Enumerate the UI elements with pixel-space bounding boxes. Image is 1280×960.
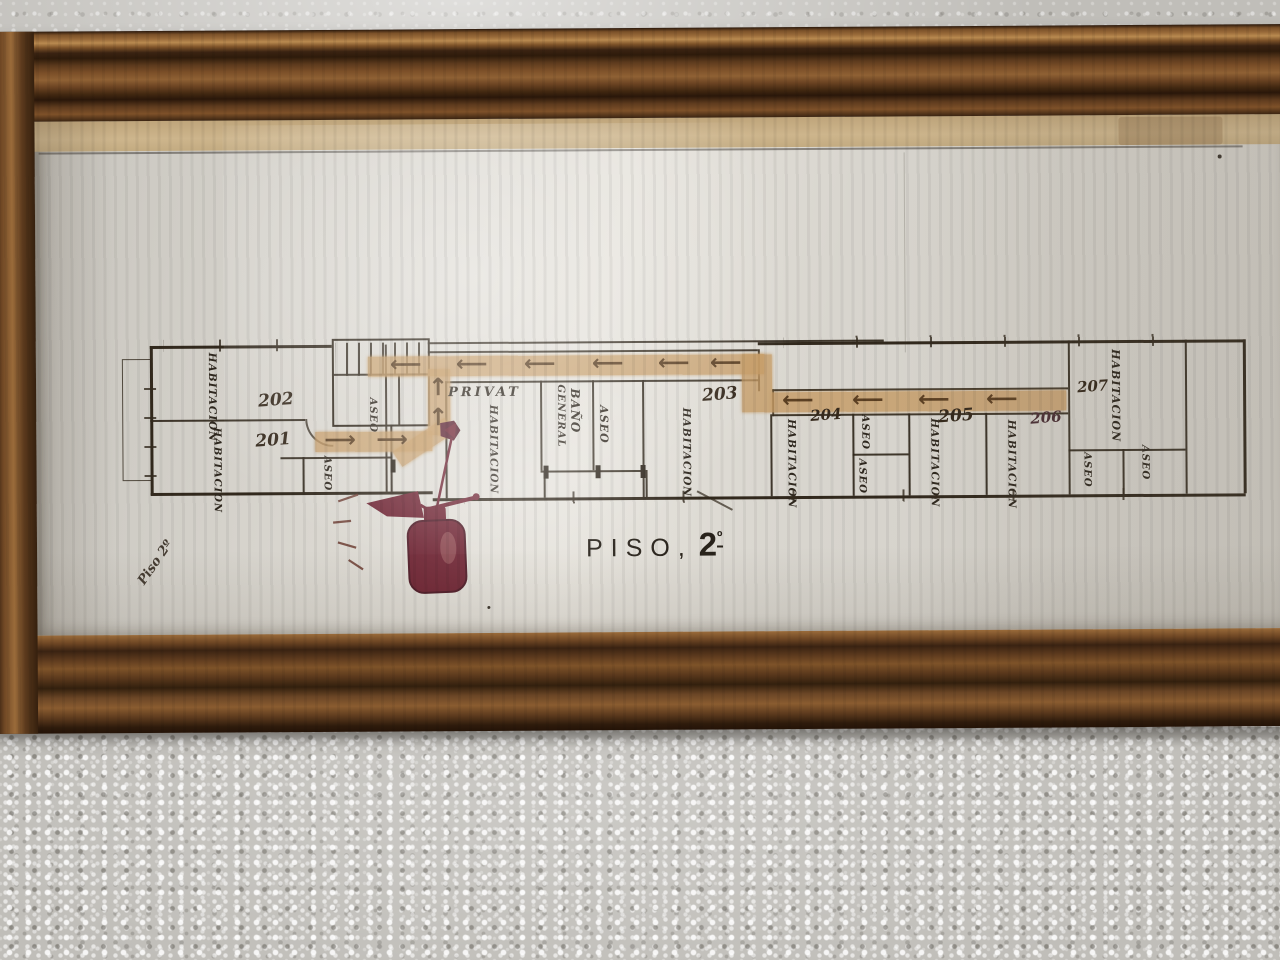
fire-extinguisher-icon xyxy=(327,418,494,609)
room-204-number: 204 xyxy=(810,405,843,425)
aseo-label: ASEO xyxy=(1139,445,1150,480)
route-arrow-left-icon: ⟵ xyxy=(390,355,422,375)
aseo-label: ASEO xyxy=(597,405,610,444)
picture-frame-left xyxy=(0,32,38,734)
room-207-number: 207 xyxy=(1076,376,1109,396)
room-206-number: 206 xyxy=(1030,407,1063,427)
title-number: 2 xyxy=(699,526,718,563)
room-205-number: 205 xyxy=(938,405,975,428)
door-jamb xyxy=(544,466,549,479)
route-arrow-left-icon: ⟵ xyxy=(710,353,742,373)
plan-title: PISO,2º xyxy=(586,526,723,565)
door-jamb xyxy=(641,465,646,478)
picture-frame-top xyxy=(0,24,1280,122)
paper-speck xyxy=(1218,154,1222,158)
room-207-label: HABITACION xyxy=(1109,349,1123,442)
route-arrow-left-icon: ⟵ xyxy=(852,391,884,411)
extinguisher-body xyxy=(407,519,467,593)
window-ticks xyxy=(164,339,314,352)
extinguisher-horn xyxy=(366,491,424,520)
room-203-label: HABITACION xyxy=(680,408,693,497)
framed-evacuation-plan: ⟵ ⟵ ⟵ ⟵ ⟵ ⟵ ⟵ ⟵ ⟵ ⟵ ⟶ ⟶ ↑ ↑ 202 201 203 … xyxy=(0,24,1280,734)
door-jamb xyxy=(596,465,601,478)
room-206-label: HABITACION xyxy=(1005,420,1018,509)
room-201-number: 201 xyxy=(255,429,292,452)
aseo-label: ASEO xyxy=(1081,452,1092,487)
title-ordinal: º xyxy=(717,529,723,548)
room-203-number: 203 xyxy=(701,383,738,406)
privat-caption: PRIVAT xyxy=(448,385,521,400)
bath-label-line1: BAÑO xyxy=(568,388,582,433)
picture-frame-bottom xyxy=(0,628,1280,734)
route-arrow-left-icon: ⟵ xyxy=(658,354,690,374)
window-ticks xyxy=(144,361,157,481)
room-202-number: 202 xyxy=(257,389,294,412)
room-205-label: HABITACION xyxy=(928,418,941,507)
evacuation-route-segment xyxy=(742,354,772,412)
bath-label-line2: GENERAL xyxy=(555,384,566,447)
route-arrow-left-icon: ⟵ xyxy=(524,355,556,375)
route-arrow-left-icon: ⟵ xyxy=(456,355,488,375)
title-word: PISO, xyxy=(586,534,693,563)
tape-mark xyxy=(1118,116,1222,145)
room-204-label: HABITACION xyxy=(785,419,798,508)
aseo-label: ASEO xyxy=(859,415,870,450)
paper-speck xyxy=(487,606,490,609)
room-201-label: HABITACION xyxy=(211,428,223,514)
route-arrow-left-icon: ⟵ xyxy=(592,354,624,374)
aseo-label: ASEO xyxy=(856,459,867,494)
plan-wall xyxy=(302,457,304,493)
route-arrow-up-icon: ↑ xyxy=(428,377,448,397)
plan-wall xyxy=(852,453,908,455)
route-arrow-left-icon: ⟵ xyxy=(986,390,1018,410)
